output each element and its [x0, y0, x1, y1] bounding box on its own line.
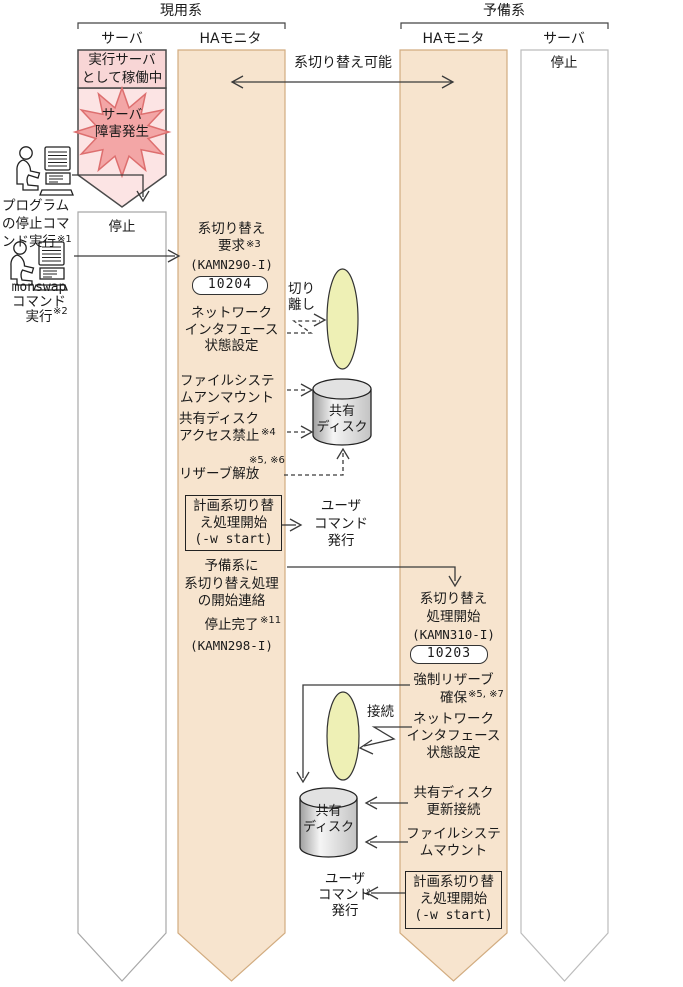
failover-diagram: 現用系 予備系 サーバ HAモニタ HAモニタ サーバ 実行サーバ として稼働中… — [0, 0, 683, 987]
server-standby-stop-label: 停止 — [514, 55, 614, 72]
footnote-5-7: ※5, ※7 — [468, 689, 504, 700]
planned-switch-label-standby: 計画系切り替 え処理開始 — [406, 874, 501, 908]
disk-forbid-arrow — [287, 426, 312, 438]
diagram-shapes-layer — [0, 0, 683, 987]
switch-request-label: 系切り替え 要求 — [178, 221, 285, 255]
reserve-release-label: リザーブ解放 — [179, 466, 259, 483]
network-interface-ellipse-bottom — [327, 692, 359, 780]
server-failure-label: サーバ 障害発生 — [70, 107, 174, 141]
active-system-label: 現用系 — [131, 3, 231, 20]
footnote-2: ※2 — [53, 306, 68, 317]
switch-request-code-pill: 10204 — [192, 276, 268, 295]
server-standby-column — [521, 50, 608, 981]
column-label-monitor-active: HAモニタ — [177, 31, 284, 48]
connect-label: 接続 — [367, 704, 394, 721]
server-active-stop-label: 停止 — [72, 219, 172, 236]
switch-start-code-pill: 10203 — [410, 645, 488, 664]
fs-unmount-label: ファイルシステ ムアンマウント — [180, 373, 275, 406]
planned-switch-cmd-standby: (-w start) — [406, 908, 501, 924]
person-terminal-icon-program-stop — [17, 147, 73, 195]
shared-disk-label-bottom: 共有 ディスク — [300, 804, 357, 836]
planned-switch-box-standby: 計画系切り替 え処理開始 (-w start) — [405, 871, 502, 929]
switch-request-msgid: (KAMN290-I) — [178, 256, 285, 273]
standby-system-label: 予備系 — [454, 3, 554, 20]
footnote-5-6: ※5, ※6 — [249, 455, 285, 466]
actor-monswap-command: monswap — [6, 281, 72, 295]
disk-update-connect-label: 共有ディスク 更新接続 — [400, 785, 507, 818]
planned-switch-label-active: 計画系切り替 え処理開始 — [186, 498, 281, 532]
shared-disk-label-top: 共有 ディスク — [313, 404, 371, 436]
stop-complete-msgid: (KAMN298-I) — [178, 637, 285, 654]
planned-switch-box-active: 計画系切り替 え処理開始 (-w start) — [185, 495, 282, 551]
disconnect-arrow — [287, 314, 325, 333]
fs-unmount-arrow — [287, 384, 312, 396]
switchable-label: 系切り替え可能 — [291, 55, 395, 72]
switch-start-msgid: (KAMN310-I) — [400, 626, 507, 643]
footnote-11: ※11 — [260, 615, 281, 626]
active-system-bracket — [78, 23, 285, 29]
user-command-label-bottom: ユーザ コマンド 発行 — [310, 871, 380, 919]
footnote-3: ※3 — [246, 239, 261, 250]
disconnect-label: 切り 離し — [288, 281, 315, 313]
running-server-label: 実行サーバ として稼働中 — [70, 51, 174, 87]
network-setting-label-active: ネットワーク インタフェース 状態設定 — [178, 305, 285, 355]
footnote-4: ※4 — [261, 427, 276, 438]
disk-forbid-label: 共有ディスク アクセス禁止 — [179, 411, 259, 444]
planned-switch-cmd-active: (-w start) — [186, 532, 281, 548]
reserve-release-arrow — [284, 449, 349, 475]
footnote-1: ※1 — [57, 234, 72, 245]
switch-start-label: 系切り替え 処理開始 — [400, 591, 507, 626]
standby-system-bracket — [401, 23, 608, 29]
notify-standby-label: 予備系に 系切り替え処理 の開始連絡 — [178, 558, 285, 611]
server-active-stop-column — [78, 212, 166, 981]
network-setting-label-standby: ネットワーク インタフェース 状態設定 — [400, 711, 507, 762]
network-interface-ellipse-top — [327, 269, 358, 369]
user-command-label-top: ユーザ コマンド 発行 — [306, 498, 376, 551]
column-label-server-active: サーバ — [72, 31, 172, 48]
column-label-monitor-standby: HAモニタ — [400, 31, 507, 48]
column-label-server-standby: サーバ — [514, 31, 614, 48]
fs-mount-label: ファイルシステ ムマウント — [400, 826, 507, 859]
